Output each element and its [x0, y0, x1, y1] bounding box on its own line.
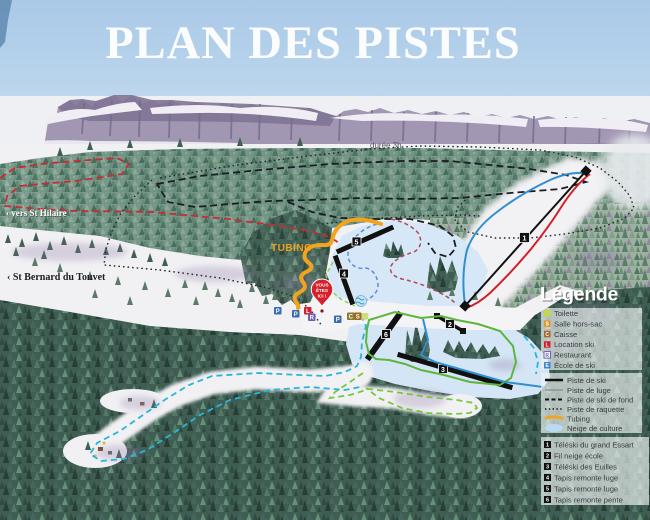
svg-text:ÊTES: ÊTES	[316, 286, 328, 293]
svg-text:‹ vers St Hilaire: ‹ vers St Hilaire	[6, 208, 67, 218]
svg-text:Tapis remonte luge: Tapis remonte luge	[554, 485, 618, 494]
svg-text:6: 6	[384, 332, 388, 339]
svg-text:C: C	[349, 315, 354, 321]
svg-text:1: 1	[522, 234, 526, 243]
svg-text:Piste de luge: Piste de luge	[567, 386, 611, 395]
svg-text:Location ski: Location ski	[554, 340, 594, 349]
svg-text:École de ski: École de ski	[554, 361, 595, 370]
svg-text:durée 3h: durée 3h	[370, 141, 402, 150]
svg-text:PLAN DES PISTES: PLAN DES PISTES	[105, 18, 521, 69]
svg-text:C: C	[545, 332, 549, 338]
svg-text:‹ St Bernard du Touvet: ‹ St Bernard du Touvet	[7, 272, 106, 283]
svg-text:P: P	[336, 318, 340, 324]
svg-text:Tapis remonte pente: Tapis remonte pente	[554, 496, 623, 505]
svg-text:Piste de ski de fond: Piste de ski de fond	[567, 396, 633, 405]
svg-text:Téléski du grand Essart: Téléski du grand Essart	[554, 441, 635, 450]
svg-text:S: S	[356, 315, 360, 321]
svg-text:Tubing: Tubing	[567, 415, 590, 424]
svg-text:Piste de ski: Piste de ski	[567, 376, 606, 385]
svg-text:Caisse: Caisse	[554, 330, 577, 339]
svg-text:3: 3	[441, 367, 445, 374]
svg-text:5: 5	[355, 240, 359, 247]
svg-text:Téléski des Euilles: Téléski des Euilles	[554, 463, 617, 472]
svg-text:Tapis remonte luge: Tapis remonte luge	[554, 474, 618, 483]
svg-text:P: P	[294, 312, 298, 318]
svg-text:R: R	[545, 353, 549, 359]
svg-text:1: 1	[546, 443, 549, 449]
svg-text:Toilette: Toilette	[554, 309, 578, 318]
svg-text:4: 4	[342, 272, 346, 279]
svg-text:Piste de raquette: Piste de raquette	[567, 405, 624, 414]
svg-text:2: 2	[448, 322, 452, 329]
svg-text:TUBING: TUBING	[271, 243, 312, 254]
svg-text:VOUS: VOUS	[315, 283, 328, 288]
svg-text:Restaurant: Restaurant	[554, 351, 592, 360]
svg-text:Légende: Légende	[540, 284, 619, 306]
svg-text:Neige de culture: Neige de culture	[567, 424, 622, 433]
svg-text:R: R	[310, 316, 315, 322]
svg-text:ICI !: ICI !	[318, 294, 327, 299]
svg-text:5: 5	[546, 487, 549, 493]
svg-text:Salle hors-sac: Salle hors-sac	[554, 319, 602, 328]
svg-text:L: L	[546, 342, 549, 348]
svg-text:6: 6	[546, 498, 549, 504]
svg-text:P: P	[276, 309, 280, 315]
svg-text:Fil neige école: Fil neige école	[554, 452, 603, 461]
svg-text:2: 2	[546, 454, 549, 460]
svg-text:3: 3	[546, 465, 549, 471]
